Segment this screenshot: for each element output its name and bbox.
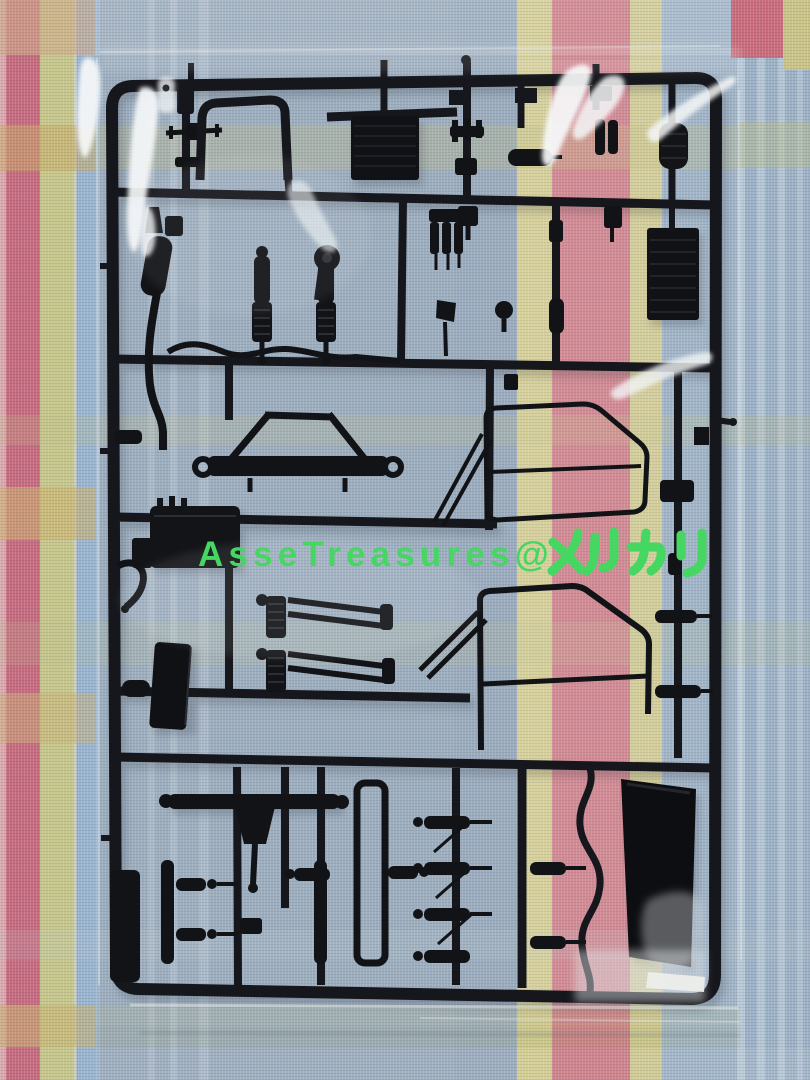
svg-text:AsseTreasures@: AsseTreasures@ xyxy=(198,535,554,574)
